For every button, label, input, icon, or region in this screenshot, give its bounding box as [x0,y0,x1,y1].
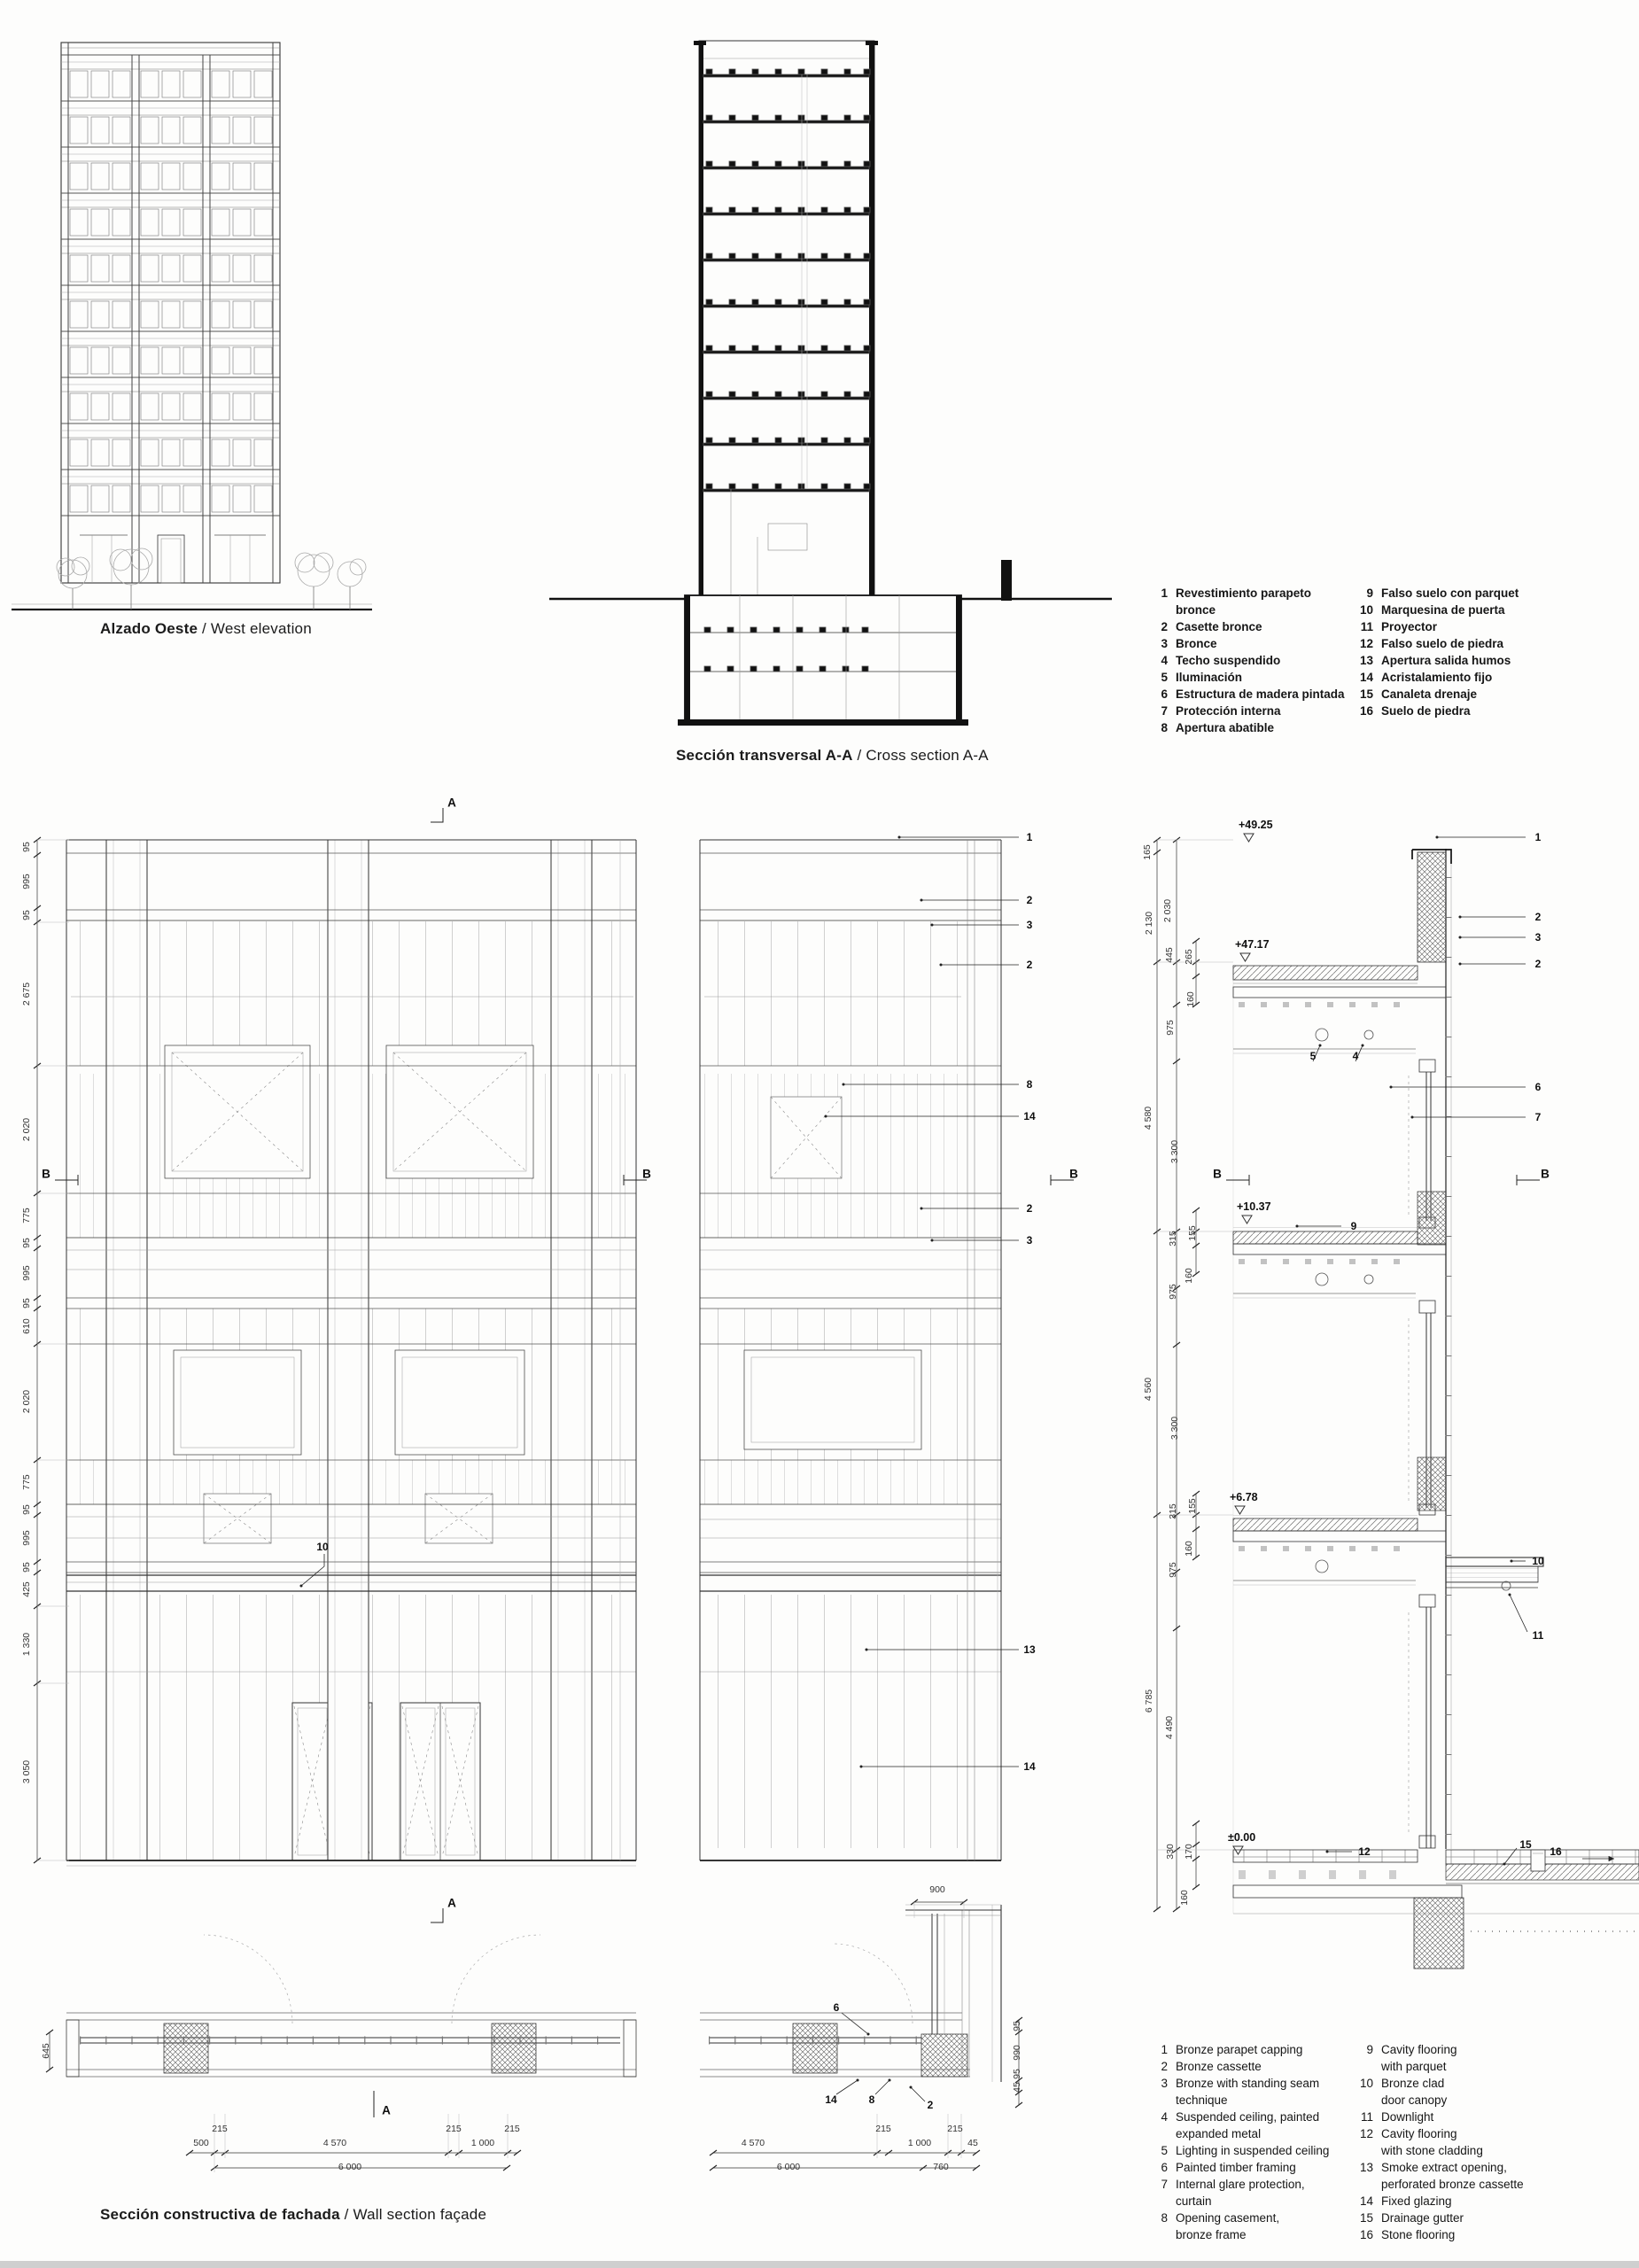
callout-number: 9 [1351,1220,1357,1232]
callout-number: 12 [1358,1845,1370,1858]
facade-exterior-elevation [700,840,1001,1862]
legend-item: 14Fixed glazing [1352,2193,1557,2210]
caption-cross-section: Sección transversal A-A / Cross section … [676,747,989,765]
drawing-linework [0,0,1639,2268]
legend-item: 15Canaleta drenaje [1352,686,1557,703]
caption-es: Sección transversal A-A [676,747,853,764]
dimension-label: 95 [21,1238,32,1248]
dimension-label: 975 [1168,1284,1178,1300]
dimension-label: 995 [21,1530,32,1546]
plan-strip-corner [700,1905,1001,2082]
legend-item: 9Cavity flooring with parquet [1352,2041,1557,2075]
callout-number: 2 [1027,959,1033,971]
dimension-label: 975 [1165,1020,1176,1036]
dimension-label: 1 000 [471,2138,494,2148]
dimension-label: 760 [933,2162,949,2172]
dimension-label: 610 [21,1318,32,1334]
dimension-label: 2 130 [1144,912,1154,935]
callout-number: 2 [928,2099,934,2111]
legend-item: 12Falso suelo de piedra [1352,635,1557,652]
legend-item: 4Suspended ceiling, painted expanded met… [1146,2109,1352,2142]
dimension-label: 215 [875,2124,891,2134]
dimension-label: 4 580 [1143,1107,1154,1130]
callout-number: 8 [1027,1078,1033,1091]
dimension-label: 315 [1168,1231,1178,1247]
dimension-label: 6 000 [338,2162,361,2172]
legend-english-col2: 9Cavity flooring with parquet10Bronze cl… [1352,2041,1557,2243]
dimension-label: 265 [1184,949,1194,965]
legend-item: 11Downlight [1352,2109,1557,2125]
section-marker-letter: B [1541,1168,1550,1181]
dimension-label: 160 [1184,1541,1194,1557]
dimension-label: 500 [193,2138,209,2148]
legend-item: 3Bronce [1146,635,1352,652]
section-marker-letter: B [1213,1168,1222,1181]
callout-number: 2 [1027,1202,1033,1215]
callout-number: 8 [869,2093,875,2106]
dimension-label: 95 [21,910,32,920]
dimension-label: 95 [21,842,32,852]
dimension-label: 2 020 [21,1390,32,1413]
dimension-label: 95 [21,1298,32,1309]
dimension-label: 4 570 [742,2138,765,2148]
legend-item: 1Revestimiento parapeto bronce [1146,585,1352,618]
dimension-label: 3 050 [21,1760,32,1783]
page-edge-bar [0,2261,1639,2268]
elevation-mark: +49.25 [1239,819,1273,831]
caption-en: / West elevation [198,620,312,637]
legend-item: 14Acristalamiento fijo [1352,669,1557,686]
legend-item: 2Bronze cassette [1146,2058,1352,2075]
dimension-label: 160 [1184,1268,1194,1284]
callout-number: 6 [1535,1081,1542,1093]
legend-item: 7Internal glare protection, curtain [1146,2176,1352,2210]
wall-section-detail [1233,849,1639,1969]
legend-item: 1Bronze parapet capping [1146,2041,1352,2058]
dimension-label: 315 [1168,1503,1178,1519]
section-marker-letter: A [382,2104,391,2117]
dimension-label: 995 [21,874,32,889]
dimension-label: 170 [1184,1844,1194,1860]
callout-number: 3 [1027,1234,1033,1247]
callout-number: 5 [1310,1050,1317,1062]
callout-number: 1 [1535,831,1542,843]
legend-item: 13Apertura salida humos [1352,652,1557,669]
dimension-label: 975 [1168,1562,1178,1578]
callout-number: 7 [1535,1111,1542,1123]
dimension-label: 2 020 [21,1118,32,1141]
dimension-label: 215 [504,2124,520,2134]
callout-number: 16 [1550,1845,1561,1858]
callout-number: 4 [1353,1050,1359,1062]
callout-number: 11 [1533,1629,1544,1642]
callout-number: 1 [1027,831,1033,843]
plan-strip-left [66,1935,636,2077]
legend-english-col1: 1Bronze parapet capping2Bronze cassette3… [1146,2041,1352,2243]
dimension-label: 6 785 [1144,1689,1154,1713]
cross-section-drawing [549,41,1112,726]
elevation-mark: +6.78 [1230,1491,1258,1503]
callout-number: 2 [1027,894,1033,906]
elevation-mark: ±0.00 [1228,1831,1255,1844]
caption-en: / Wall section façade [340,2206,486,2223]
dimension-label: 645 [41,2043,51,2059]
caption-es: Alzado Oeste [100,620,198,637]
legend-spanish-col1: 1Revestimiento parapeto bronce2Casette b… [1146,585,1352,736]
dimension-label: 95 [1012,2021,1022,2031]
dimension-label: 95 [1012,2069,1022,2079]
trees [57,548,366,610]
callout-number: 2 [1535,958,1542,970]
legend-item: 11Proyector [1352,618,1557,635]
dimension-label: 2 675 [21,983,32,1006]
dimension-label: 775 [21,1474,32,1490]
section-marker-letter: B [42,1168,50,1181]
callout-number: 3 [1535,931,1542,944]
callout-number: 10 [316,1541,328,1553]
section-marker-letter: A [447,1897,456,1910]
section-marker-letter: B [1069,1168,1078,1181]
dimension-label: 900 [929,1884,945,1895]
dimension-label: 95 [21,1562,32,1573]
legend-item: 5Lighting in suspended ceiling [1146,2142,1352,2159]
callout-number: 3 [1027,919,1033,931]
callout-number: 15 [1519,1838,1531,1851]
caption-en: / Cross section A-A [853,747,989,764]
legend-item: 9Falso suelo con parquet [1352,585,1557,602]
dimension-label: 4 560 [1143,1378,1154,1401]
dimension-label: 215 [446,2124,462,2134]
elevation-mark: +47.17 [1235,938,1270,951]
legend-item: 5Iluminación [1146,669,1352,686]
door-canopy [1446,1557,1543,1590]
dimension-label: 95 [21,1504,32,1515]
facade-interior-elevation [66,840,636,1866]
west-elevation-drawing [12,43,372,610]
legend-item: 7Protección interna [1146,703,1352,719]
dimension-label: 160 [1185,991,1196,1007]
dimension-label: 1 000 [908,2138,931,2148]
architectural-drawing-sheet: Alzado Oeste / West elevation Sección tr… [0,0,1639,2268]
legend-spanish-col2: 9Falso suelo con parquet10Marquesina de … [1352,585,1557,719]
callout-number: 6 [834,2001,840,2014]
dimension-label: 1 330 [21,1633,32,1656]
elevation-mark: +10.37 [1237,1200,1271,1213]
dimension-label: 155 [1187,1225,1198,1241]
legend-item: 12Cavity flooring with stone cladding [1352,2125,1557,2159]
legend-item: 2Casette bronce [1146,618,1352,635]
caption-es: Sección constructiva de fachada [100,2206,340,2223]
legend-item: 10Marquesina de puerta [1352,602,1557,618]
legend-item: 6Painted timber framing [1146,2159,1352,2176]
legend-item: 8Apertura abatible [1146,719,1352,736]
dimension-label: 155 [1187,1498,1198,1514]
legend-item: 10Bronze clad door canopy [1352,2075,1557,2109]
callout-number: 2 [1535,911,1542,923]
section-marker-letter: A [447,796,456,810]
legend-item: 13Smoke extract opening, perforated bron… [1352,2159,1557,2193]
dimension-label: 215 [212,2124,228,2134]
dimension-label: 45 [967,2138,978,2148]
dimension-label: 425 [21,1581,32,1597]
caption-wall-section: Sección constructiva de fachada / Wall s… [100,2206,486,2224]
dimension-label: 2 030 [1162,899,1173,922]
legend-item: 16Suelo de piedra [1352,703,1557,719]
caption-west-elevation: Alzado Oeste / West elevation [100,620,312,638]
dimension-label: 4 570 [323,2138,346,2148]
legend-item: 4Techo suspendido [1146,652,1352,669]
legend-item: 15Drainage gutter [1352,2210,1557,2226]
legend-item: 16Stone flooring [1352,2226,1557,2243]
section-marker-letter: B [642,1168,651,1181]
dimension-label: 4 490 [1164,1716,1175,1739]
dimension-label: 330 [1165,1844,1176,1860]
dimension-label: 215 [947,2124,963,2134]
dimension-label: 3 300 [1169,1417,1180,1440]
callout-number: 14 [1023,1760,1035,1773]
legend-item: 6Estructura de madera pintada [1146,686,1352,703]
dimension-label: 990 [1012,2045,1022,2061]
dimension-label: 165 [1142,844,1153,860]
callout-number: 14 [825,2093,836,2106]
callout-number: 14 [1023,1110,1035,1122]
legend-item: 8Opening casement, bronze frame [1146,2210,1352,2243]
callout-number: 13 [1023,1643,1035,1656]
legend-item: 3Bronze with standing seam technique [1146,2075,1352,2109]
callout-number: 10 [1532,1555,1543,1567]
dimension-label: 3 300 [1169,1140,1180,1163]
dimension-label: 775 [21,1208,32,1223]
dimension-label: 6 000 [777,2162,800,2172]
dimension-label: 45 [1012,2082,1022,2093]
dimension-label: 160 [1179,1890,1190,1906]
dimension-label: 995 [21,1265,32,1281]
dimension-label: 445 [1164,947,1175,963]
